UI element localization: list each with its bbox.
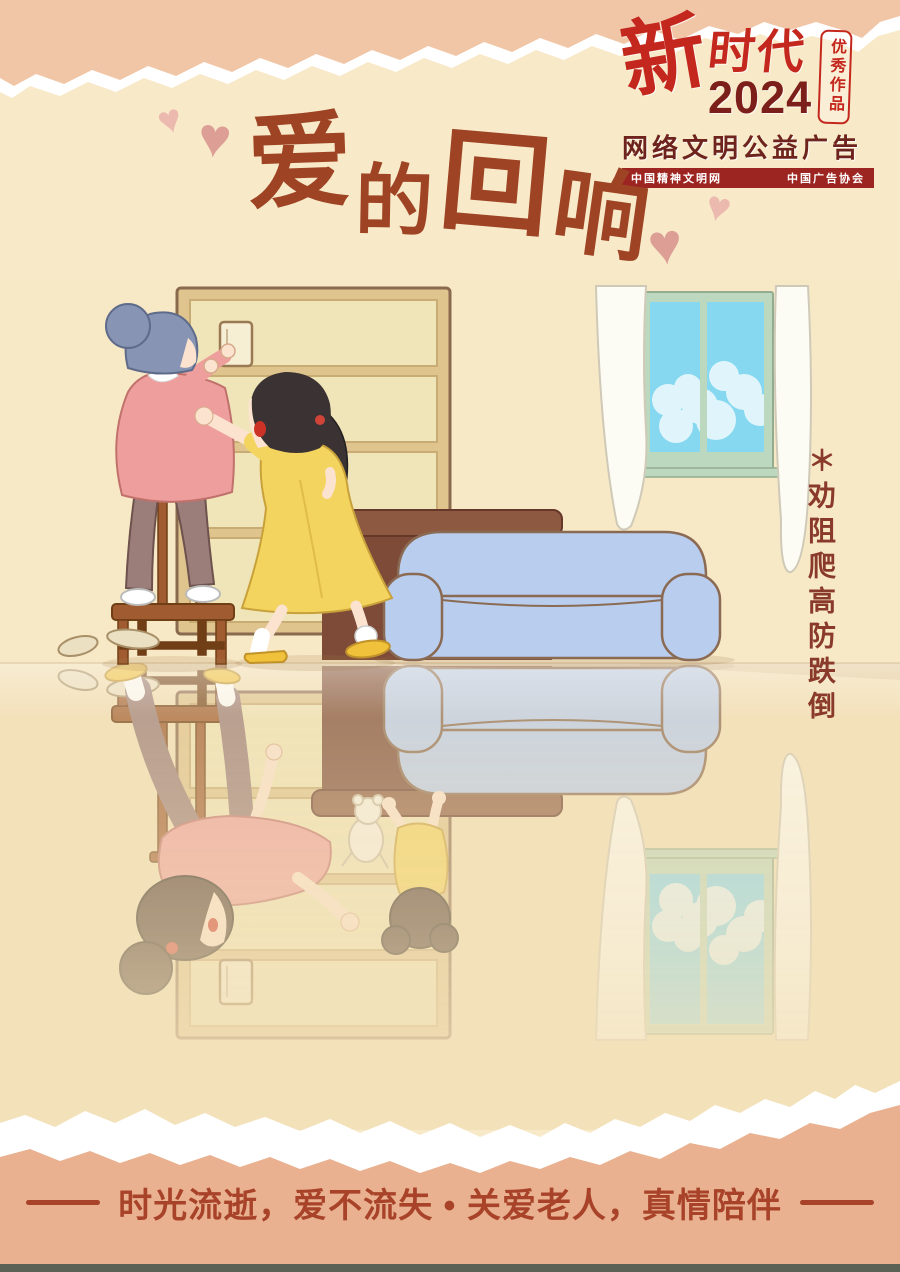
- tagline-text: 时光流逝，爱不流失 • 关爱老人，真情陪伴: [118, 1178, 782, 1227]
- badge-banner: 中国精神文明网 中国广告协会: [622, 168, 874, 188]
- badge-brand-calligraphy: 新: [616, 13, 712, 102]
- heart-icon: ♥: [701, 184, 735, 231]
- award-seal: 优秀作品: [817, 29, 852, 124]
- side-note: ＊劝阻爬高防跌倒: [800, 446, 840, 726]
- tagline-dash-right: [800, 1200, 874, 1205]
- bottom-bar: [0, 1264, 900, 1272]
- title-char-3: 回: [436, 126, 555, 245]
- tagline: 时光流逝，爱不流失 • 关爱老人，真情陪伴: [0, 1178, 900, 1227]
- poster-root: 新 时代 2024 优秀作品 网络文明公益广告 中国精神文明网 中国广告协会 爱…: [0, 0, 900, 1272]
- title-char-4: 响: [547, 162, 655, 270]
- page-title: 爱 的 回 响: [243, 108, 654, 267]
- heart-icon: ♥: [195, 108, 234, 167]
- heart-icon: ♥: [645, 214, 685, 275]
- badge-banner-right: 中国广告协会: [787, 170, 865, 186]
- badge-year: 2024: [708, 77, 812, 118]
- heart-icon: ♥: [153, 98, 187, 143]
- poster-illustration: [0, 280, 900, 1130]
- title-char-1: 爱: [245, 108, 354, 217]
- campaign-badge: 新 时代 2024 优秀作品 网络文明公益广告 中国精神文明网 中国广告协会: [622, 20, 874, 188]
- badge-brand-row: 新 时代 2024 优秀作品: [622, 20, 874, 124]
- badge-brand-block: 时代 2024: [708, 30, 812, 118]
- title-char-2: 的: [354, 163, 433, 242]
- tagline-dash-left: [26, 1200, 100, 1205]
- badge-brand-rest: 时代: [706, 30, 815, 77]
- badge-subtitle: 网络文明公益广告: [622, 128, 874, 165]
